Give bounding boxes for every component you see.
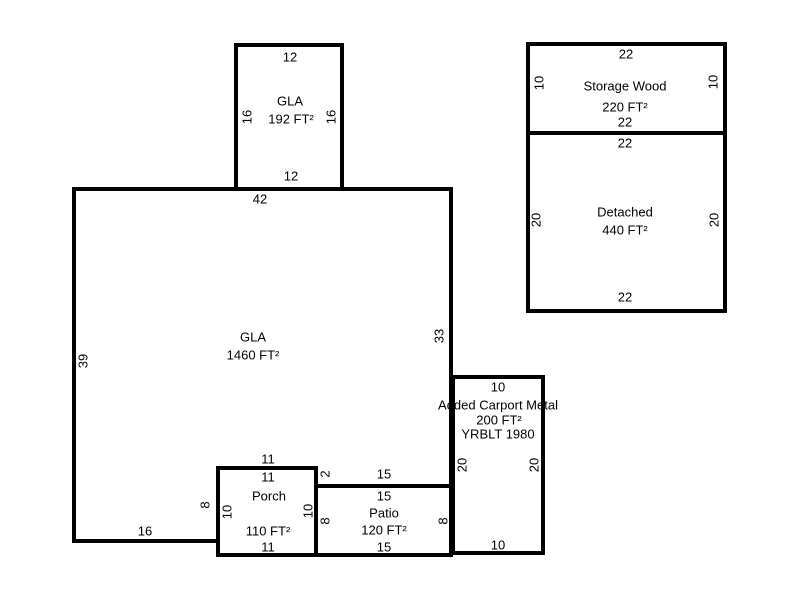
porch-dim-right: 10	[302, 504, 315, 518]
porch-area: 110 FT²	[246, 525, 291, 538]
gla-main-label: GLA	[240, 331, 266, 344]
porch-dim-bottom: 11	[261, 541, 275, 554]
gla-main-dim-step: 2	[319, 470, 332, 477]
gla-main-dim-notch-left: 8	[199, 501, 212, 508]
detached-dim-left: 20	[530, 213, 543, 227]
patio-dim-left: 8	[319, 517, 332, 524]
patio-dim-top: 15	[377, 490, 391, 503]
patio-dim-bottom: 15	[377, 541, 391, 554]
patio-dim-right: 8	[437, 517, 450, 524]
carport-area: 200 FT²	[476, 414, 522, 427]
detached-area: 440 FT²	[602, 224, 648, 237]
carport-dim-bottom: 10	[491, 539, 505, 552]
carport-dim-left: 20	[456, 458, 469, 472]
detached-dim-right: 20	[708, 213, 721, 227]
gla-main-dim-above-patio: 15	[377, 468, 391, 481]
gla-upper-dim-right: 16	[325, 110, 338, 124]
patio-label: Patio	[369, 507, 399, 520]
porch-dim-top: 11	[261, 471, 275, 484]
gla-upper-dim-top: 12	[283, 51, 297, 64]
patio-area: 120 FT²	[361, 524, 407, 537]
floorplan-sketch: 12 16 GLA 192 FT² 16 12 22 10 Storage Wo…	[0, 0, 800, 600]
carport-label: Added Carport Metal	[438, 399, 558, 412]
gla-main-dim-top: 42	[253, 193, 267, 206]
porch-dim-left: 10	[221, 505, 234, 519]
sketch-outlines	[0, 0, 800, 600]
storage-dim-top: 22	[619, 48, 633, 61]
carport-dim-top: 10	[491, 381, 505, 394]
detached-label: Detached	[597, 206, 653, 219]
gla-main-dim-left: 39	[77, 354, 90, 368]
gla-upper-dim-left: 16	[241, 110, 254, 124]
gla-upper-label: GLA	[277, 95, 303, 108]
gla-main-area: 1460 FT²	[227, 349, 280, 362]
gla-main-dim-bottom-left: 16	[138, 525, 152, 538]
storage-area: 220 FT²	[602, 101, 648, 114]
gla-upper-area: 192 FT²	[268, 113, 314, 126]
storage-dim-left: 10	[533, 76, 546, 90]
detached-dim-top: 22	[618, 137, 632, 150]
storage-label: Storage Wood	[584, 80, 667, 93]
carport-dim-right: 20	[528, 458, 541, 472]
storage-dim-bottom: 22	[618, 116, 632, 129]
gla-main-dim-right: 33	[433, 329, 446, 343]
carport-year-built: YRBLT 1980	[461, 428, 534, 441]
gla-main-dim-above-porch: 11	[261, 453, 275, 466]
porch-label: Porch	[252, 490, 286, 503]
gla-upper-dim-bottom: 12	[284, 170, 298, 183]
storage-dim-right: 10	[707, 75, 720, 89]
detached-dim-bottom: 22	[618, 291, 632, 304]
